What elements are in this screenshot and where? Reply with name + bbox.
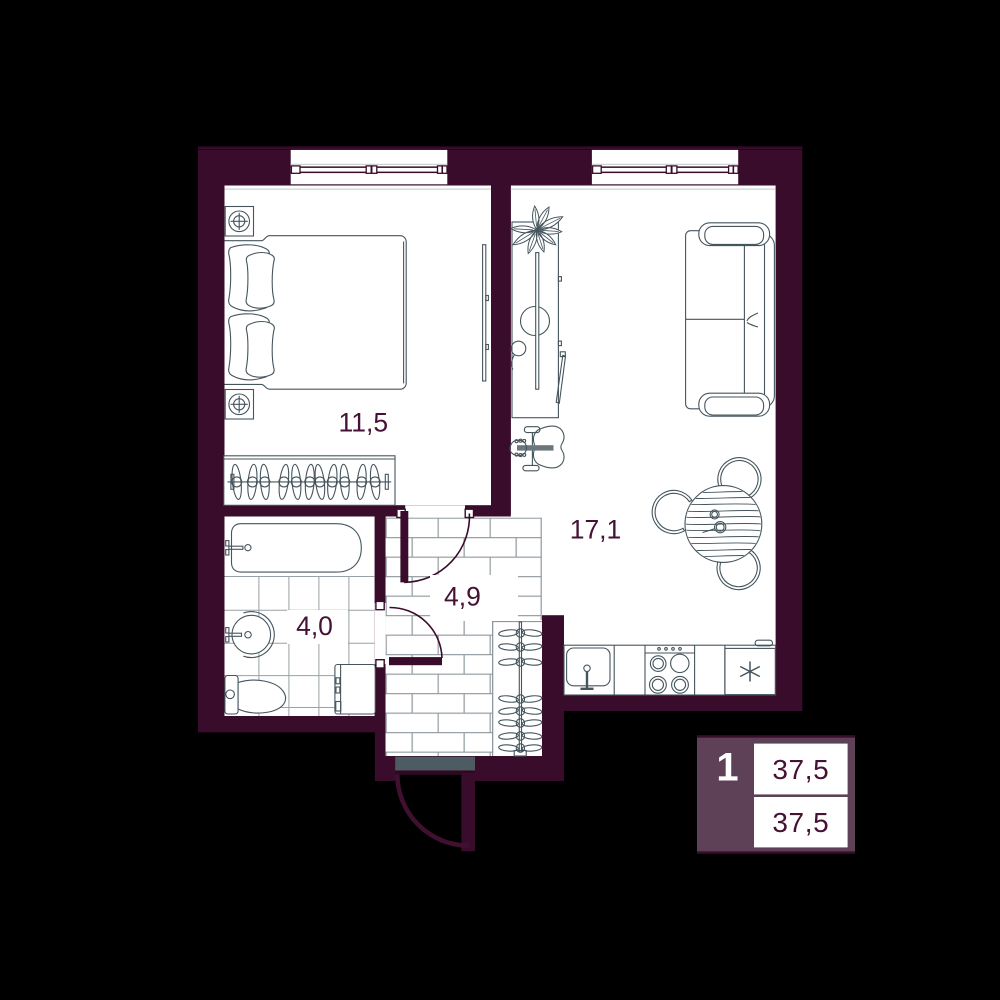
svg-text:17,1: 17,1	[570, 515, 622, 545]
svg-text:4,9: 4,9	[444, 581, 481, 611]
svg-text:37,5: 37,5	[772, 754, 829, 785]
svg-text:11,5: 11,5	[338, 408, 388, 438]
svg-text:4,0: 4,0	[296, 611, 333, 641]
svg-text:37,5: 37,5	[772, 807, 829, 838]
svg-text:1: 1	[716, 746, 738, 790]
